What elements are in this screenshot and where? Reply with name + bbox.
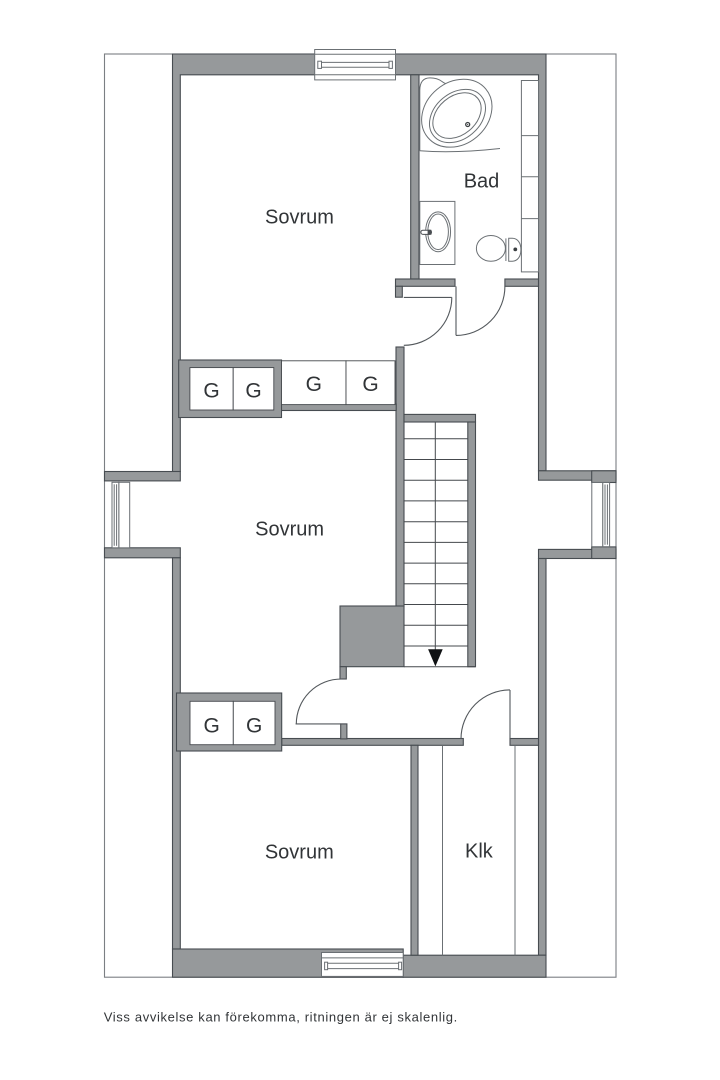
svg-text:Klk: Klk xyxy=(465,841,494,863)
svg-text:Sovrum: Sovrum xyxy=(265,206,334,228)
svg-text:Sovrum: Sovrum xyxy=(265,841,334,863)
svg-text:Bad: Bad xyxy=(464,171,500,193)
svg-text:G: G xyxy=(362,373,378,396)
svg-text:G: G xyxy=(204,715,220,738)
svg-text:G: G xyxy=(203,379,219,402)
svg-text:Sovrum: Sovrum xyxy=(255,519,324,541)
svg-text:G: G xyxy=(306,373,322,396)
svg-text:G: G xyxy=(246,715,262,738)
svg-text:Viss avvikelse kan förekomma,: Viss avvikelse kan förekomma, ritningen … xyxy=(104,1009,458,1024)
svg-text:G: G xyxy=(245,379,261,402)
